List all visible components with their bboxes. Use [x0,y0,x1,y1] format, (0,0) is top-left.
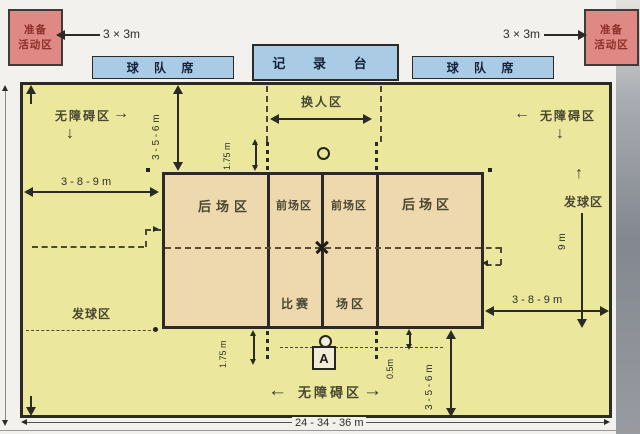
free-zone-bottom-arrow-right-icon: → [363,381,382,400]
dim-389-right-arrow-left-icon [485,306,494,316]
substitution-dash-right [380,86,382,142]
back-zone-right-label: 后场区 [402,194,453,213]
attack-extension-bottom-right [375,331,378,361]
dim-width-arrow-left-icon [21,419,27,425]
free-zone-right-label: 无障碍区 [540,107,596,124]
free-zone-bottom-label: 无障碍区 [298,382,362,401]
dim-389-left-arrow-left-icon [24,187,33,197]
front-zone-right-label: 前场区 [331,197,367,213]
attack-extension-top-right [375,142,378,172]
page-edge-line [0,430,640,431]
recorder-table: 记 录 台 [252,44,399,81]
dim-356-top-arrow-up-icon [173,85,183,94]
court-name-label-1: 比赛 [281,295,311,312]
axis-hook-right-v [500,247,502,265]
extension-dot-top-left [146,168,150,172]
prep-zone-right-line1: 准备 [600,23,623,37]
dim-356-bottom-arrow-down-icon [446,408,456,417]
dim-356-bottom-line [450,334,452,412]
attack-extension-bottom-left [266,331,269,361]
prep-zone-right: 准备 活动区 [584,9,639,66]
substitution-arrow-left-icon [270,114,279,124]
front-zone-left-label: 前场区 [276,197,312,213]
prep-left-pointer-arrow-icon [56,30,65,40]
team-bench-right: 球 队 席 [412,56,554,79]
dim-width-label: 24 - 34 - 36 m [292,417,366,429]
dim-389-right-line [489,310,605,312]
prep-zone-right-line2: 活动区 [594,38,629,52]
prep-right-pointer-arrow-icon [578,30,587,40]
free-zone-left-label: 无障碍区 [55,107,111,124]
volleyball-court-diagram: 准备 活动区 3 × 3m 准备 活动区 3 × 3m 球 队 席 球 队 席 … [0,0,640,434]
court-name-label-2: 场区 [336,295,366,312]
free-zone-bottom-arrow-left-icon: ← [268,381,287,400]
dim-05-arrow-up-icon [406,329,412,335]
prep-zone-left-line2: 活动区 [18,38,53,52]
referee-chair: A [312,346,336,370]
service-zone-right-label: 发球区 [564,193,603,210]
dim-389-right-arrow-right-icon [600,306,609,316]
dim-356-bottom-label: 3 - 5 - 6 m [424,364,436,410]
axis-hook-right-arrow-icon [482,260,488,266]
bottom-dashed-line [280,347,443,348]
attack-extension-top-left [266,142,269,172]
prep-zone-left: 准备 活动区 [8,9,63,66]
dim-height-inner-top-arrow-icon [26,85,36,94]
prep-right-pointer-line [544,34,580,36]
axis-hook-left-v [145,229,147,247]
extension-dot-top-right [488,168,492,172]
dim-9m-label: 9 m [557,233,569,250]
attack-line-left [267,175,270,326]
dim-389-left-arrow-right-icon [150,187,159,197]
dim-389-left-label: 3 - 8 - 9 m [61,176,111,188]
referee-chair-label: A [319,351,328,366]
dim-height-arrow-down-icon [2,420,8,426]
substitution-arrow-line [276,118,369,120]
attack-line-right [376,175,379,326]
prep-zone-left-line1: 准备 [24,23,47,37]
dim-width-arrow-right-icon [604,419,610,425]
dim-356-top-line [177,90,179,166]
dim-9m-arrow-down-icon [577,319,587,328]
referee-stand-marker [317,147,330,160]
dim-height-label: 15 - 19 - 21 m [0,268,3,330]
free-zone-right-arrow-down-icon: ↓ [556,126,564,142]
axis-hook-right-h [486,264,501,266]
dim-175-bottom-line [253,333,255,361]
dim-05-arrow-down-icon [406,344,412,350]
dim-05-label: 0.5m [384,359,396,379]
service-right-arrow-up-icon: ↑ [575,166,583,182]
free-zone-left-arrow-down-icon: ↓ [66,126,74,142]
service-left-end-dot [153,327,158,332]
dim-height-arrow-up-icon [2,85,8,91]
substitution-zone-label: 换人区 [301,93,343,110]
dim-height-line [5,88,6,422]
dim-389-left-line [28,191,156,193]
free-zone-left-arrow-right-icon: → [113,106,129,122]
net-center-cross-marker [315,240,329,254]
dim-389-right-label: 3 - 8 - 9 m [512,294,562,306]
axis-dash-right [486,247,501,249]
dim-9m-line [581,213,583,321]
dim-175-top-arrow-up-icon [252,139,258,145]
prep-size-left-label: 3 × 3m [103,27,140,41]
prep-left-pointer-line [64,34,100,36]
back-zone-left-label: 后场区 [198,196,252,215]
dim-175-top-label: 1.75 m [221,142,233,170]
dim-height-inner-bottom-arrow-icon [26,407,36,416]
dim-175-bottom-arrow-up-icon [250,330,256,336]
substitution-arrow-right-icon [363,114,372,124]
dim-356-top-arrow-down-icon [173,162,183,171]
service-left-dashed-line [26,330,156,331]
dim-175-top-arrow-down-icon [252,165,258,171]
dim-356-bottom-arrow-up-icon [446,330,456,339]
dim-175-bottom-arrow-down-icon [250,359,256,365]
free-zone-right-arrow-left-icon: ← [514,106,530,122]
substitution-dash-left [266,86,268,142]
axis-hook-left-arrow-icon [153,226,159,232]
dim-175-bottom-label: 1.75 m [217,340,229,368]
dim-356-top-label: 3 - 5 - 6 m [151,114,163,160]
service-zone-left-label: 发球区 [72,305,111,322]
team-bench-left: 球 队 席 [92,56,234,79]
prep-size-right-label: 3 × 3m [503,27,540,41]
axis-dash-left [32,246,144,248]
